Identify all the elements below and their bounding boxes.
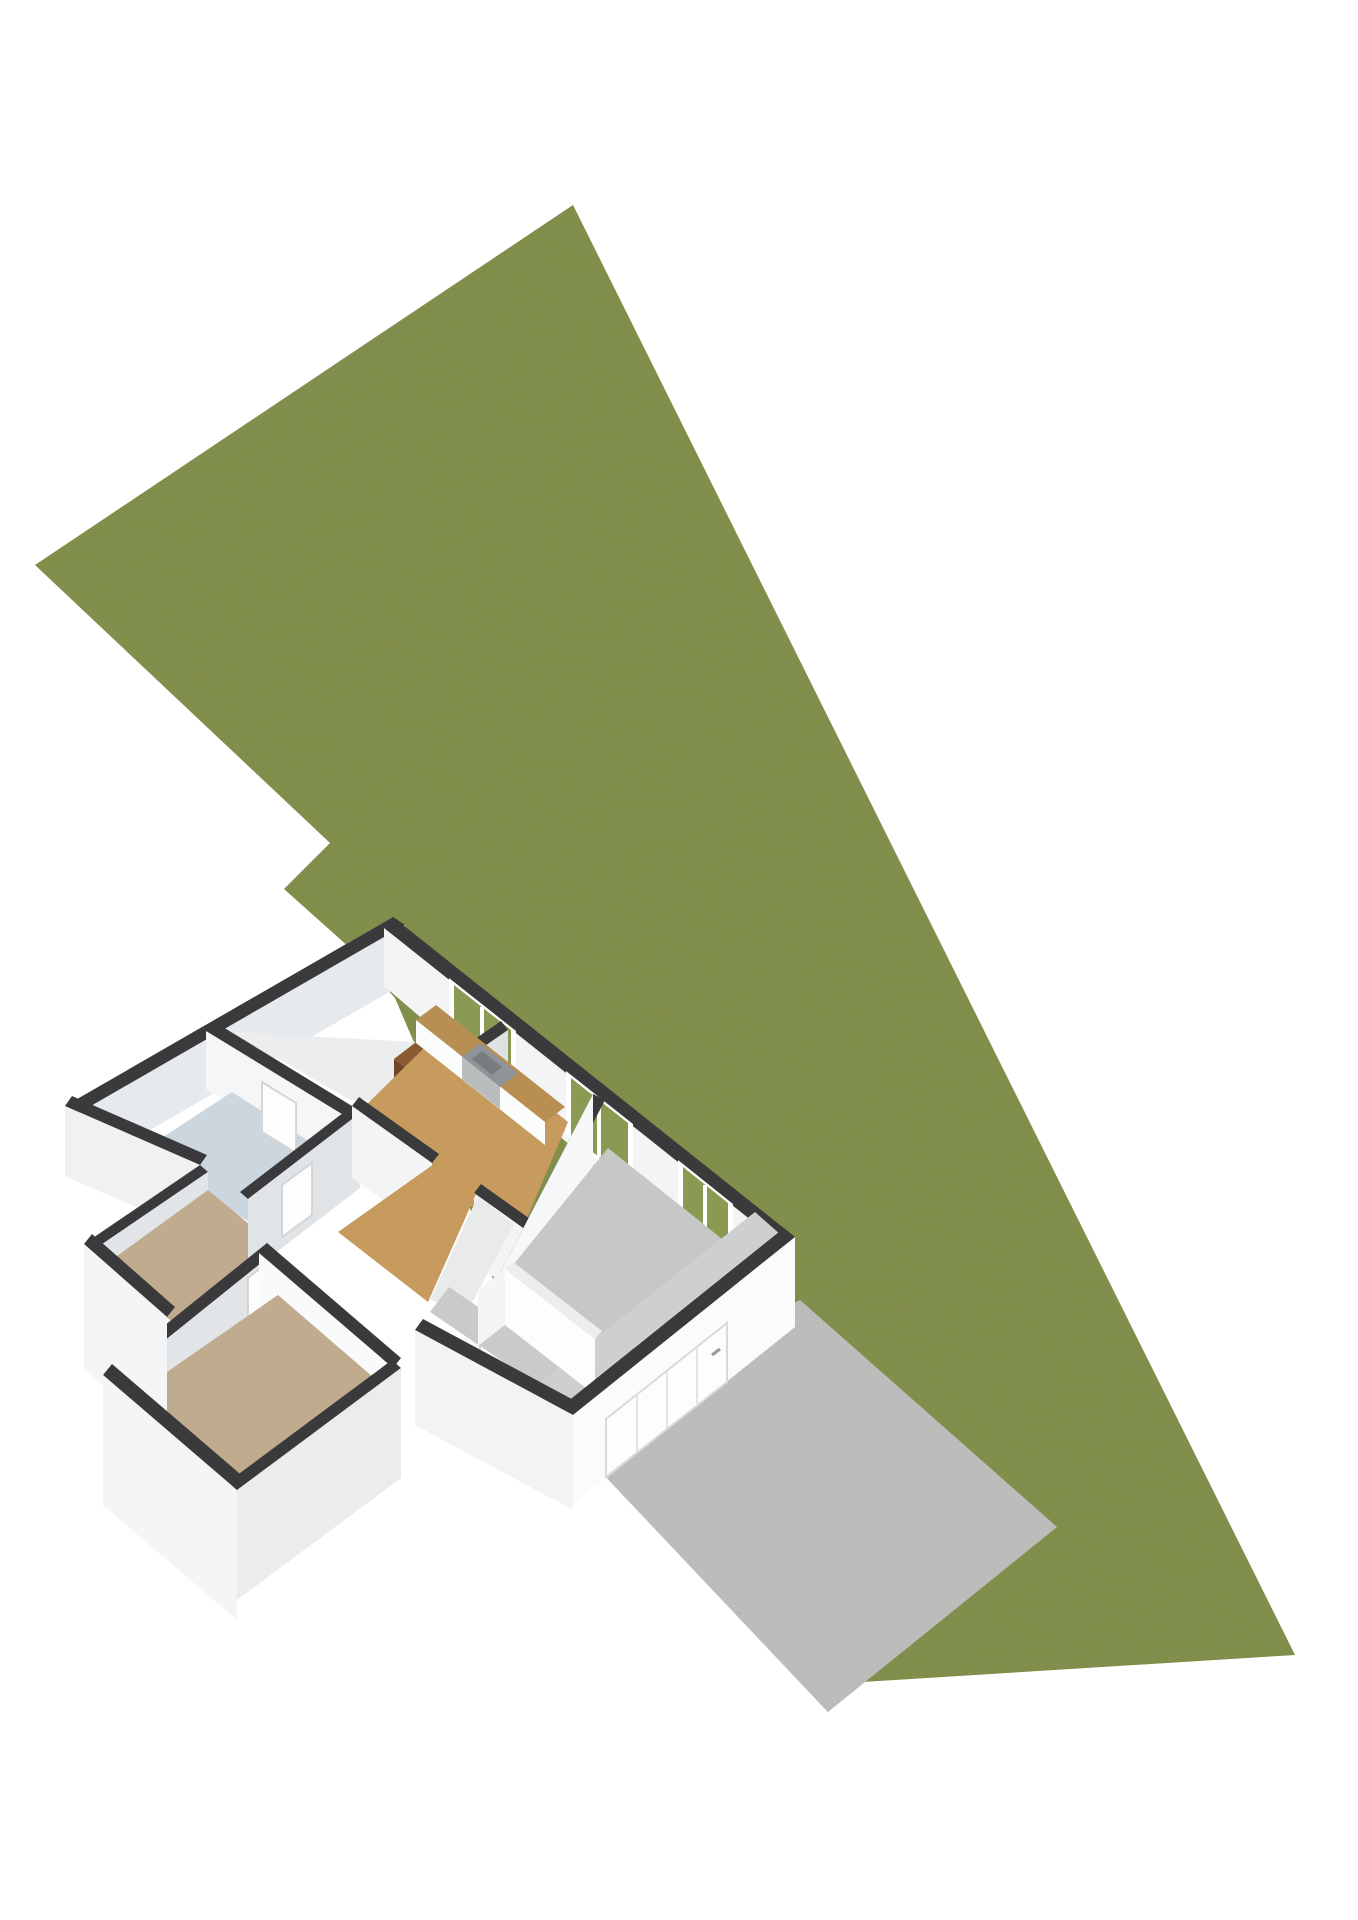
floorplan-3d-canvas: [0, 0, 1358, 1920]
site-plan-3d-view: [0, 0, 1358, 1920]
